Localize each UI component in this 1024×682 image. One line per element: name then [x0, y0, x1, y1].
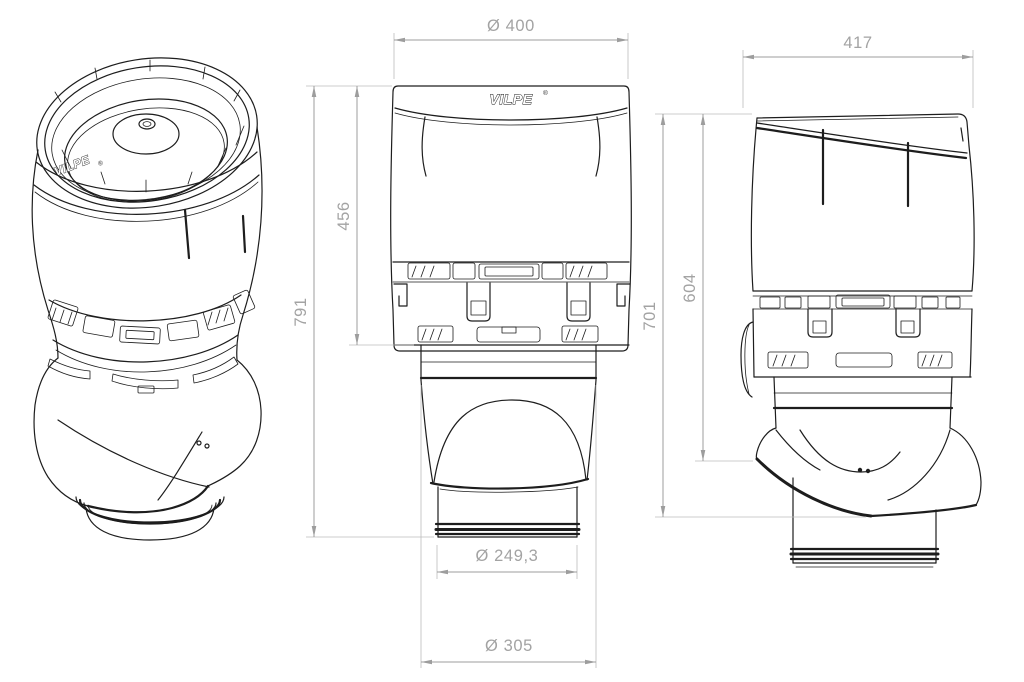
dim-side-depth: 417	[743, 34, 973, 108]
front-adapter	[421, 380, 596, 492]
front-hood	[391, 86, 632, 351]
front-view: VILPE ®	[391, 86, 632, 537]
dim-front-total-height: 791	[292, 86, 434, 537]
dim-label-side-total-height: 701	[641, 301, 659, 330]
dim-label-collar-diameter: Ø 305	[485, 637, 533, 655]
dim-label-upper-height: 456	[335, 201, 353, 230]
vilpe-logo-iso: VILPE	[52, 152, 92, 179]
side-hood	[751, 114, 974, 291]
vilpe-logo-front: VILPE	[490, 91, 533, 107]
front-pipe	[436, 487, 579, 537]
dim-side-body-height: 604	[681, 114, 753, 461]
front-lower-slots	[394, 326, 629, 345]
dim-label-pipe-diameter: Ø 249,3	[476, 547, 539, 565]
side-collar	[774, 377, 952, 428]
front-clip-band	[393, 262, 630, 321]
dim-front-pipe-diameter: Ø 249,3	[437, 545, 577, 579]
drawing-canvas: VILPE ®	[0, 0, 1024, 682]
dim-label-total-height: 791	[292, 297, 310, 326]
iso-pipe	[76, 497, 224, 540]
iso-fan-plate	[113, 114, 179, 154]
registered-mark-iso: ®	[97, 159, 105, 168]
iso-view: VILPE ®	[26, 43, 268, 540]
registered-mark-front: ®	[543, 89, 548, 97]
dim-front-top-diameter: Ø 400	[394, 17, 628, 79]
side-lower-band	[741, 309, 972, 397]
side-pipe	[791, 478, 938, 567]
iso-top-rim	[26, 43, 268, 224]
dim-label-side-body-height: 604	[681, 273, 699, 302]
dim-label-depth: 417	[843, 34, 872, 52]
side-clip-band	[753, 291, 972, 337]
iso-louver-band	[48, 290, 256, 372]
side-skirt	[756, 428, 981, 516]
front-collar	[421, 345, 596, 380]
dim-label-top-diameter: Ø 400	[487, 17, 535, 35]
technical-drawing: VILPE ®	[0, 0, 1024, 682]
side-view	[741, 114, 981, 567]
iso-skirt	[34, 358, 261, 512]
